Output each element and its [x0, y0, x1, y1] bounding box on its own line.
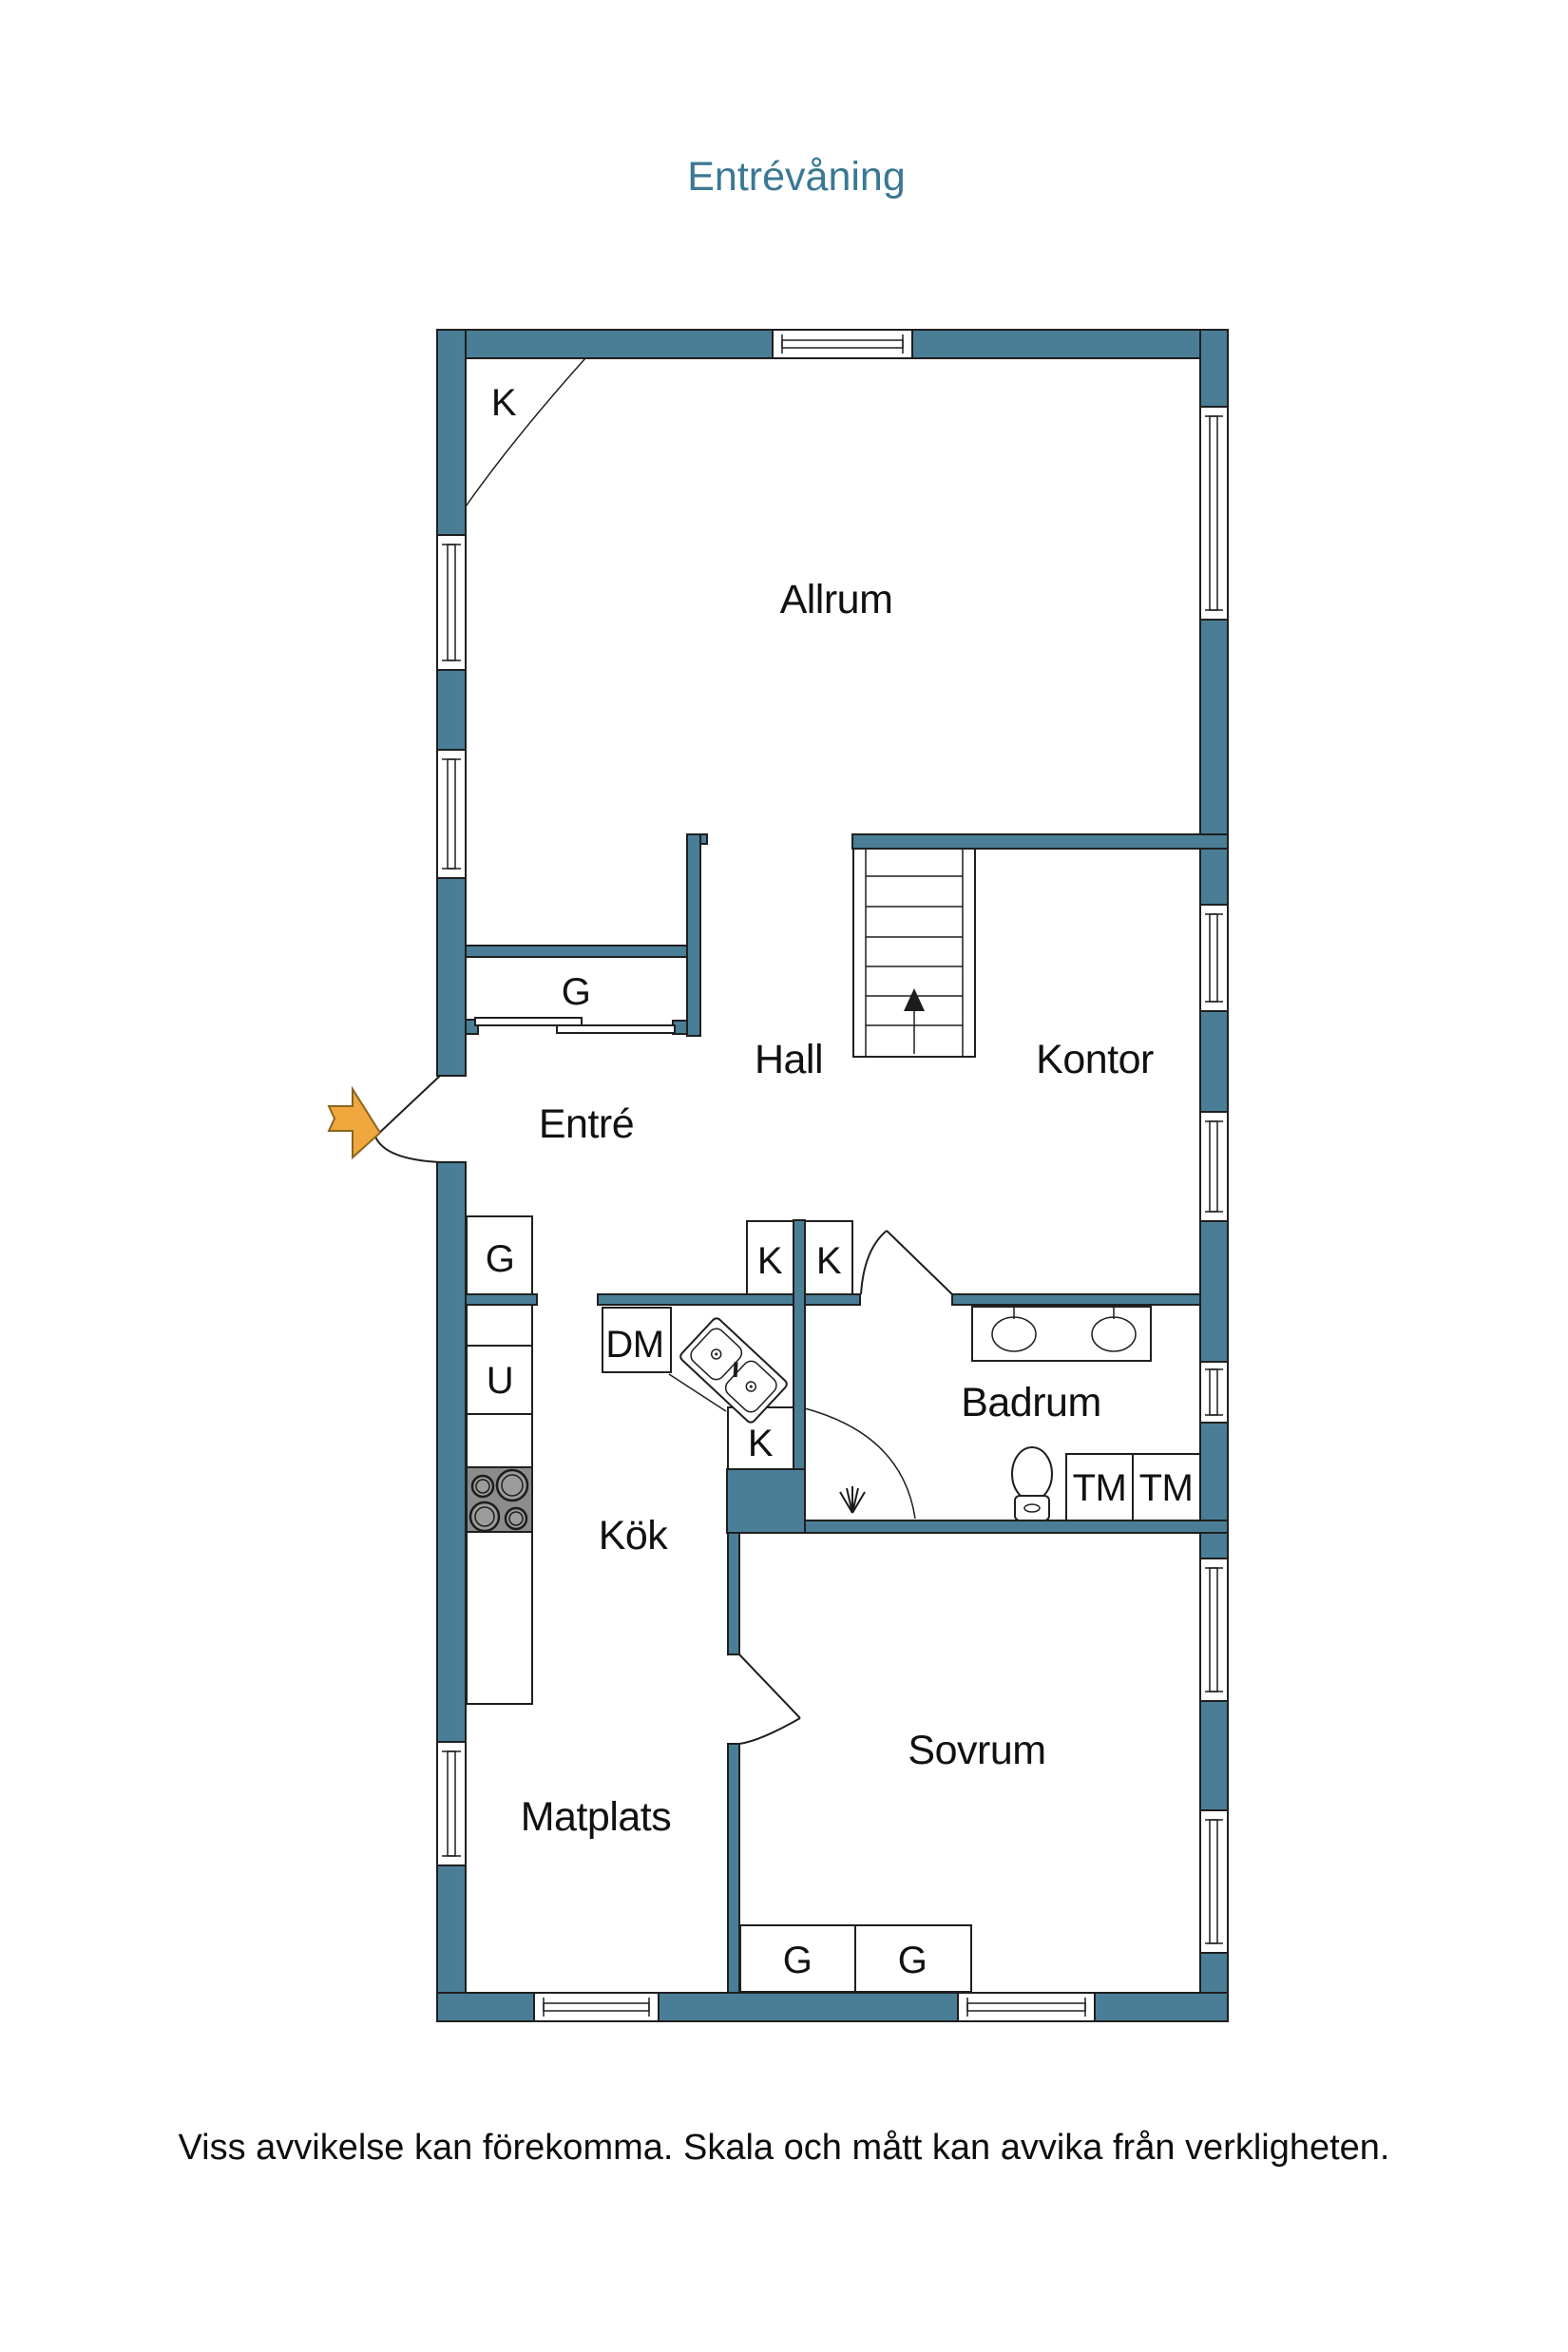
staircase: [853, 849, 975, 1057]
label-fridge-k: K: [748, 1423, 774, 1464]
floor-plan-page: Entrévåning K Allrum G Hall Kontor Entré…: [0, 0, 1568, 2352]
room-label-matplats: Matplats: [521, 1794, 672, 1840]
window-icon: [534, 1993, 659, 2021]
window-icon: [773, 330, 912, 358]
window-icon: [1200, 1810, 1228, 1953]
vanity-sinks-icon: [972, 1307, 1151, 1361]
window-icon: [958, 1993, 1095, 2021]
stove-icon: [467, 1467, 532, 1532]
shower-icon: [805, 1408, 915, 1519]
bedroom-door-icon: [739, 1654, 800, 1744]
toilet-icon: [1012, 1447, 1052, 1520]
label-wardrobe-g: G: [898, 1940, 927, 1981]
window-icon: [1200, 407, 1228, 620]
sliding-door-icon: [475, 1018, 675, 1033]
ceiling-line: [466, 358, 585, 507]
floor-plan-drawing: Entrévåning K Allrum G Hall Kontor Entré…: [0, 0, 1568, 2352]
window-icon: [1200, 1112, 1228, 1221]
room-label-allrum: Allrum: [780, 577, 893, 622]
label-dishwasher-dm: DM: [605, 1324, 663, 1366]
window-icon: [1200, 1558, 1228, 1701]
label-dryer-tm: TM: [1139, 1467, 1194, 1509]
label-cabinet-g: G: [486, 1238, 515, 1280]
room-label-sovrum: Sovrum: [908, 1728, 1045, 1773]
bathroom-door-icon: [861, 1231, 952, 1294]
label-oven-u: U: [487, 1360, 513, 1402]
label-fridge-k: K: [816, 1240, 842, 1282]
label-closet-g: G: [562, 971, 591, 1013]
bedroom-wardrobes: [740, 1925, 971, 1992]
window-icon: [437, 1742, 466, 1865]
room-label-kontor: Kontor: [1036, 1037, 1154, 1082]
window-icon: [437, 535, 466, 670]
room-label-badrum: Badrum: [961, 1380, 1101, 1425]
window-icon: [437, 750, 466, 878]
room-label-entre: Entré: [539, 1101, 634, 1147]
room-label-kok: Kök: [599, 1513, 669, 1558]
window-icon: [1200, 1362, 1228, 1423]
entrance-door-icon: [375, 1076, 440, 1162]
disclaimer-text: Viss avvikelse kan förekomma. Skala och …: [179, 2128, 1390, 2168]
entrance-arrow-icon: [329, 1089, 380, 1157]
label-washer-tm: TM: [1073, 1467, 1127, 1509]
floor-title: Entrévåning: [687, 154, 906, 200]
label-fridge-k: K: [757, 1240, 783, 1282]
label-wardrobe-g: G: [783, 1940, 813, 1981]
room-label-hall: Hall: [755, 1037, 823, 1082]
label-closet-k: K: [491, 382, 517, 424]
window-icon: [1200, 905, 1228, 1011]
